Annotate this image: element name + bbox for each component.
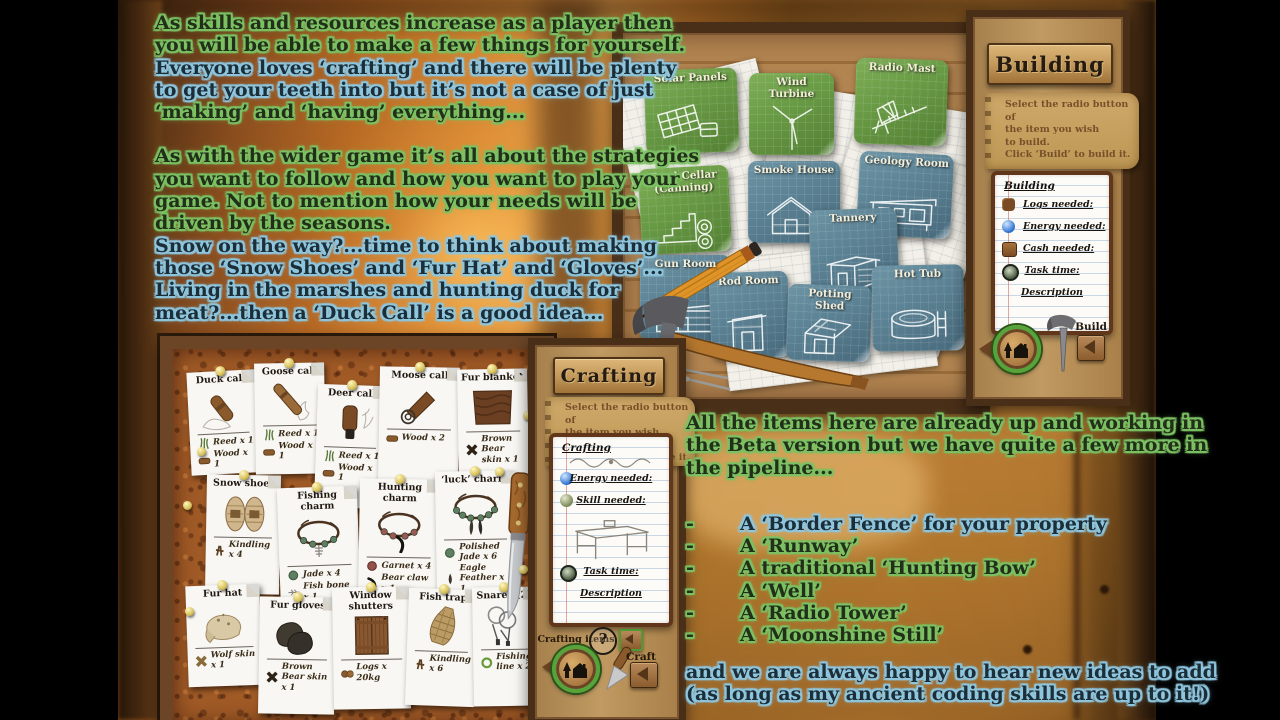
intro-line: Living in the marshes and hunting duck f… [155, 279, 625, 301]
ingredient-text: Wood x 2 [402, 432, 445, 443]
craft-button[interactable] [630, 662, 658, 688]
ingredient-text: Wolf skin x 1 [210, 648, 258, 671]
building-title: Building [995, 52, 1105, 77]
pin-icon [284, 358, 294, 368]
crafting-notepad-header: Crafting [562, 442, 669, 454]
intro-paragraph-2: As with the wider game it’s all about th… [155, 145, 625, 323]
build-label: Build [1069, 321, 1113, 333]
notepad-label: Skill needed: [553, 495, 669, 506]
screenshot-stage: As skills and resources increase as a pl… [0, 0, 1280, 720]
pelt-icon [266, 670, 279, 683]
card-divider [263, 424, 317, 426]
crafting-row-energy-needed: Energy needed: [553, 469, 669, 491]
ingredient: Fishing line x 2 [480, 651, 533, 673]
bullet-dash-icon: - [686, 557, 740, 579]
ingredient: Brown Bear skin x 1 [265, 661, 331, 694]
crafting-notepad-rows-bottom: Task time:Description [553, 562, 669, 606]
tile-label: Wind Turbine [749, 76, 834, 100]
reed-icon [262, 428, 275, 441]
building-row-description: Description [995, 283, 1109, 305]
cabin-trees-icon [1002, 337, 1032, 361]
outro-text: All the items here are already up and wo… [686, 412, 1152, 705]
intro-line: As skills and resources increase as a pl… [155, 12, 625, 34]
kindling-icon [213, 543, 226, 556]
outro-line: All the items here are already up and wo… [686, 412, 1152, 434]
turbine-blueprint-icon [753, 96, 831, 154]
card-divider [341, 658, 402, 660]
ingredient-text: Reed x 1 [338, 450, 379, 462]
tile-label: Tannery [809, 210, 897, 225]
tile-label: Hot Tub [871, 267, 963, 281]
building-instruction-line: Click ‘Build’ to build it. [1005, 149, 1135, 162]
moose-art [381, 381, 458, 428]
tile-label: Radio Mast [856, 60, 948, 75]
card-divider [367, 556, 431, 558]
crafting-title-plank: Crafting [553, 357, 665, 395]
ingredient-text: Brown Bear skin x 1 [281, 661, 331, 693]
logs-icon [340, 666, 353, 679]
snowshoes-art [208, 489, 279, 536]
notepad-label: Description [995, 287, 1109, 298]
craft-card-fur-hat[interactable]: Fur hatWolf skin x 1 [185, 584, 262, 688]
ingredient: Wood x 1 [197, 447, 255, 471]
intro-text: As skills and resources increase as a pl… [155, 12, 625, 324]
craft-card-fur-blanket[interactable]: Fur blanketBrown Bear skin x 1 [457, 368, 529, 476]
wood-icon [322, 466, 335, 479]
intro-line: driven by the seasons. [155, 212, 625, 234]
ingredient: Reed x 1 [322, 449, 379, 464]
ingredient: Kindling x 4 [213, 539, 276, 561]
card-ingredients: Kindling x 4 [208, 539, 278, 561]
gloves-art [261, 611, 334, 658]
notepad-label: Task time: [553, 566, 669, 577]
card-ingredients: Wolf skin x 1 [190, 648, 261, 671]
intro-line: Snow on the way?...time to think about m… [155, 235, 625, 257]
crafting-cork-board: Duck callReed x 1Wood x 1Goose callReed … [160, 336, 554, 720]
card-divider [387, 428, 451, 430]
crafting-instruction-line: Select the radio button of [565, 402, 691, 427]
charm-fishing-art [280, 511, 358, 566]
card-divider [214, 536, 272, 538]
cork-pin [519, 565, 528, 574]
ingredient-text: Kindling x 4 [229, 539, 276, 561]
card-ingredients: Kindling x 6 [408, 652, 474, 675]
crafting-sidebar: Crafting Select the radio button ofthe i… [528, 338, 686, 720]
home-cabin-button[interactable] [552, 645, 600, 693]
pipeline-bullet: -A ‘Well’ [686, 580, 1152, 602]
reed-icon [322, 449, 335, 462]
pin-icon [469, 466, 479, 476]
crafting-row-task-time: Task time: [553, 562, 669, 584]
tile-label: Geology Room [859, 154, 953, 171]
cork-pin [185, 607, 194, 616]
pipeline-bullet: -A ‘Radio Tower’ [686, 602, 1152, 624]
card-ingredients: Brown Bear skin x 1 [260, 661, 333, 694]
building-title-plank: Building [987, 43, 1113, 85]
building-instruction-line: the item you wish [1005, 124, 1135, 137]
cabin-trees-icon [561, 657, 591, 681]
build-button[interactable] [1077, 335, 1105, 361]
intro-line: you will be able to make a few things fo… [155, 34, 625, 56]
jade-icon [287, 569, 300, 582]
flourish-decoration [566, 456, 656, 469]
ingredient: Garnet x 4 [365, 559, 434, 573]
intro-line: game. Not to mention how your needs will… [155, 190, 625, 212]
card-ingredients: Logs x 20kg [335, 661, 408, 683]
building-instruction-line: Select the radio button of [1005, 99, 1135, 124]
intro-line: you want to follow and how you want to p… [155, 168, 625, 190]
prev-arrow-button[interactable] [979, 339, 994, 359]
bullet-dash-icon: - [686, 535, 740, 557]
crafting-notepad-rows-top: Energy needed:Skill needed: [553, 469, 669, 513]
card-title: Fishing charm [279, 490, 356, 514]
pipeline-bullet: -A ‘Border Fence’ for your property [686, 513, 1152, 535]
crafting-notepad: Crafting Energy needed:Skill needed: Tas… [549, 433, 673, 627]
crafting-row-skill-needed: Skill needed: [553, 491, 669, 513]
pipeline-bullet: -A ‘Runway’ [686, 535, 1152, 557]
building-row-cash-needed: Cash needed: [995, 239, 1109, 261]
intro-line: to get your teeth into but it’s not a ca… [155, 79, 625, 101]
wood-icon [386, 431, 399, 444]
bullet-text: A ‘Moonshine Still’ [740, 624, 943, 646]
furhat-art [188, 598, 260, 646]
bullet-text: A traditional ‘Hunting Bow’ [740, 557, 1036, 579]
card-ingredients: Brown Bear skin x 1 [460, 433, 527, 466]
building-notepad: Building Logs needed:Energy needed:Cash … [991, 171, 1113, 335]
outro-line: the pipeline... [686, 457, 1152, 479]
building-tile-radio-mast[interactable]: Radio Mast [854, 57, 949, 146]
intro-line: As with the wider game it’s all about th… [155, 145, 625, 167]
pipeline-bullet: -A traditional ‘Hunting Bow’ [686, 557, 1152, 579]
notepad-label: Logs needed: [1023, 199, 1093, 210]
card-ingredients: Reed x 1Wood x 1 [257, 427, 324, 462]
pipeline-bullet: -A ‘Moonshine Still’ [686, 624, 1152, 646]
pin-icon [365, 582, 375, 592]
outro-footer: and we are always happy to hear new idea… [686, 661, 1152, 706]
card-divider [481, 648, 529, 650]
ingredient: Wood x 1 [262, 440, 321, 462]
cork-pin [495, 467, 504, 476]
intro-line: meat?...then a ‘Duck Call’ is a good ide… [155, 302, 625, 324]
line-icon [480, 656, 493, 669]
ingredient-text: Logs x 20kg [356, 661, 406, 683]
intro-line: those ‘Snow Shoes’ and ‘Fur Hat’ and ‘Gl… [155, 257, 625, 279]
wood-icon [262, 445, 275, 458]
ingredient-text: Kindling x 6 [429, 653, 472, 675]
building-notepad-rows: Logs needed:Energy needed:Cash needed:Ta… [995, 195, 1109, 305]
ingredient-text: Garnet x 4 [381, 561, 431, 572]
building-instruction-line: to build. [1005, 137, 1135, 150]
craft-card-fur-gloves[interactable]: Fur glovesBrown Bear skin x 1 [258, 596, 336, 714]
outro-footer-line: (as long as my ancient coding skills are… [686, 683, 1152, 705]
notepad-label: Task time: [995, 265, 1109, 276]
building-tile-solar-panels[interactable]: Solar Panels [644, 67, 740, 154]
building-row-logs-needed: Logs needed: [995, 195, 1109, 217]
intro-paragraph-1: As skills and resources increase as a pl… [155, 12, 625, 123]
mast-blueprint-icon [861, 85, 941, 146]
trap-art [409, 602, 476, 650]
pelt-icon [465, 443, 478, 456]
card-ingredients: Wood x 2 [381, 431, 457, 445]
kindling-icon [413, 657, 426, 670]
goose-art [256, 377, 323, 424]
bullet-text: A ‘Runway’ [740, 535, 858, 557]
garnet-icon [365, 559, 378, 572]
ingredient-text: Wood x 1 [213, 447, 255, 470]
tile-label: Smoke House [748, 164, 840, 176]
ingredient: Logs x 20kg [340, 661, 406, 683]
bullet-text: A ‘Well’ [740, 580, 821, 602]
home-cabin-button[interactable] [993, 325, 1041, 373]
card-ingredients: Fishing line x 2 [475, 651, 535, 673]
card-title: Hunting charm [362, 482, 438, 504]
craft-card-window-shutters[interactable]: Window shuttersLogs x 20kg [332, 586, 411, 709]
outro-footer-line: and we are always happy to hear new idea… [686, 661, 1152, 683]
pelt-tan-icon [195, 654, 208, 667]
bullet-dash-icon: - [686, 624, 740, 646]
logs-icon [1002, 198, 1015, 211]
cork-pin [197, 447, 206, 456]
intro-line: Everyone loves ‘crafting’ and there will… [155, 57, 625, 79]
deer-art [318, 398, 384, 446]
building-notepad-header: Building [1004, 180, 1109, 192]
ingredient: Kindling x 6 [413, 653, 472, 676]
ingredient: Reed x 1 [262, 427, 321, 441]
notepad-label: Cash needed: [1023, 243, 1094, 254]
charm-hunting-art [361, 503, 438, 556]
card-divider [444, 538, 507, 540]
ingredient-text: Brown Bear skin x 1 [481, 433, 525, 465]
outro-line: the Beta version but we have quite a few… [686, 434, 1152, 456]
crafting-row-description: Description [553, 584, 669, 606]
shutters-art [334, 611, 408, 658]
workbench-sketch [566, 514, 656, 562]
blanket-art [459, 383, 526, 430]
duck-art [189, 384, 255, 433]
ingredient: Wood x 2 [386, 431, 455, 445]
craft-card-fish-trap[interactable]: Fish trapKindling x 6 [405, 588, 478, 707]
outro-bullet-list: -A ‘Border Fence’ for your property-A ‘R… [686, 513, 1152, 647]
jade-icon [443, 546, 456, 559]
building-tile-wind-turbine[interactable]: Wind Turbine [749, 73, 834, 155]
bullet-dash-icon: - [686, 580, 740, 602]
notepad-label: Description [553, 588, 669, 599]
craft-card-moose-call[interactable]: Moose callWood x 2 [378, 366, 460, 484]
building-row-energy-needed: Energy needed: [995, 217, 1109, 239]
crafting-title: Crafting [561, 365, 658, 387]
pin-icon [438, 584, 448, 594]
ingredient: Wolf skin x 1 [195, 648, 259, 671]
hottub-blueprint-icon [879, 291, 958, 350]
card-divider [267, 658, 327, 660]
notepad-label: Energy needed: [1023, 221, 1106, 232]
ingredient-text: Reed x 1 [278, 428, 319, 439]
craft-card-duck-call[interactable]: Duck callReed x 1Wood x 1 [186, 369, 259, 475]
cash-icon [1002, 242, 1017, 257]
bullet-text: A ‘Radio Tower’ [740, 602, 907, 624]
card-divider [466, 430, 520, 432]
ingredient: Brown Bear skin x 1 [465, 433, 525, 466]
outro-paragraph: All the items here are already up and wo… [686, 412, 1152, 479]
ingredient-text: Jade x 4 [303, 569, 341, 581]
building-row-task-time: Task time: [995, 261, 1109, 283]
notepad-label: Energy needed: [553, 473, 669, 484]
building-instructions-note: Select the radio button ofthe item you w… [985, 93, 1139, 169]
building-sidebar: Building Select the radio button ofthe i… [966, 10, 1130, 406]
card-title: Window shutters [334, 590, 407, 612]
craft-card-snow-shoes[interactable]: Snow shoesKindling x 4 [205, 474, 281, 594]
bullet-text: A ‘Border Fence’ for your property [740, 513, 1107, 535]
ingredient-text: Reed x 1 [213, 435, 254, 448]
bullet-dash-icon: - [686, 602, 740, 624]
energy-icon [1002, 220, 1015, 233]
bullet-dash-icon: - [686, 513, 740, 535]
intro-line: ‘making’ and ‘having’ everything... [155, 101, 625, 123]
cork-pin [183, 501, 192, 510]
